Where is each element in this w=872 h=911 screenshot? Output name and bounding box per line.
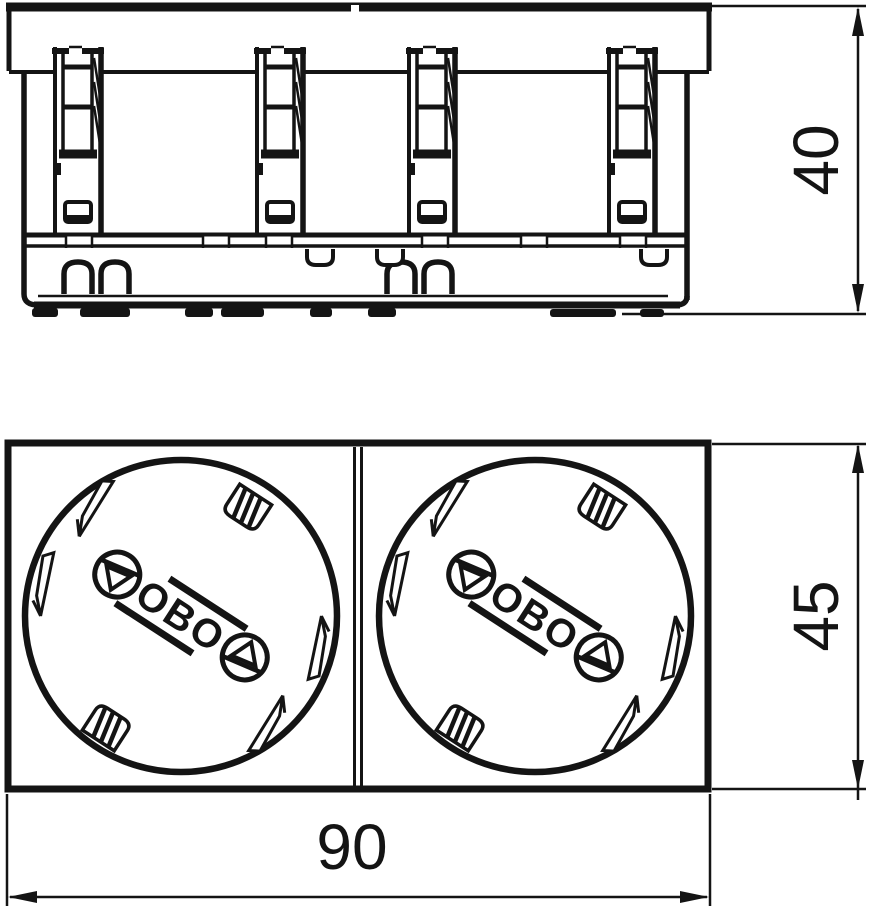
mounting-clip	[606, 47, 658, 235]
cover-plate	[6, 5, 712, 72]
mounting-clip	[254, 47, 306, 235]
dimension-40-label: 40	[780, 124, 852, 195]
side-view: 40	[6, 5, 866, 317]
technical-drawing-canvas: 40 OBO	[0, 0, 872, 911]
dimension-90: 90	[7, 794, 710, 906]
middle-rail	[24, 233, 687, 248]
top-edge-notch	[351, 5, 359, 12]
arrowhead-up	[852, 444, 864, 473]
dimension-45: 45	[712, 444, 866, 800]
hanging-tab	[307, 249, 333, 265]
mounting-clip	[406, 47, 458, 235]
hanging-tab	[641, 249, 667, 265]
mounting-clip	[52, 47, 104, 235]
front-view: OBO OBO	[7, 443, 866, 906]
socket-left: OBO	[18, 460, 345, 772]
retaining-hook	[424, 262, 452, 294]
dimension-45-label: 45	[780, 580, 852, 651]
arrowhead-down	[852, 760, 864, 789]
base-feet	[32, 308, 664, 317]
arrowhead-down	[852, 284, 864, 313]
dimension-40: 40	[622, 6, 866, 314]
dimension-90-label: 90	[316, 811, 387, 883]
retaining-hook	[64, 262, 92, 294]
hanging-tab	[377, 249, 403, 265]
arrowhead-right	[680, 891, 709, 903]
socket-right: OBO	[372, 460, 699, 772]
arrowhead-up	[852, 7, 864, 36]
retaining-hook	[101, 262, 129, 294]
arrowhead-left	[8, 891, 37, 903]
